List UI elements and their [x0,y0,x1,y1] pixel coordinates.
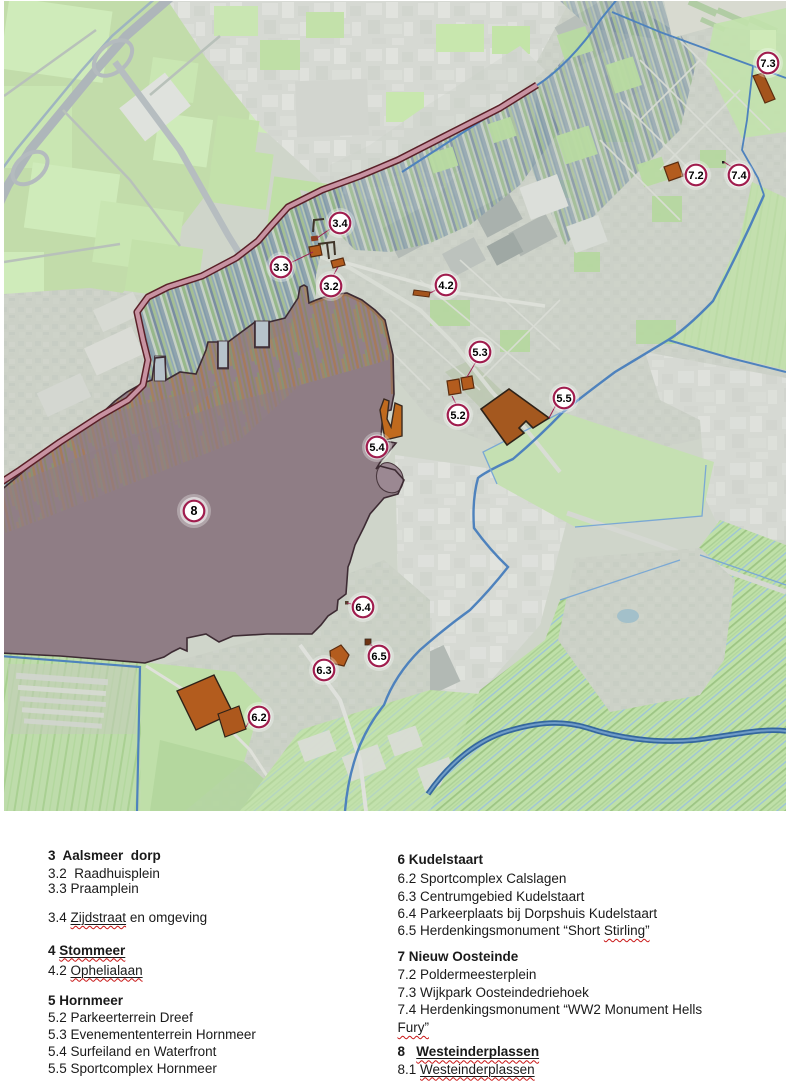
svg-text:3.3: 3.3 [273,262,288,274]
svg-text:8: 8 [191,504,198,518]
svg-text:5.4: 5.4 [369,442,385,454]
svg-text:6.4: 6.4 [355,602,371,614]
svg-text:5.2: 5.2 [450,410,465,422]
svg-text:7.4: 7.4 [731,170,747,182]
svg-text:7.2: 7.2 [688,170,703,182]
svg-text:5.3: 5.3 [472,347,487,359]
svg-text:5.5: 5.5 [556,393,571,405]
svg-text:3.4: 3.4 [332,218,348,230]
svg-text:4.2: 4.2 [438,280,453,292]
svg-text:6.3: 6.3 [316,665,331,677]
svg-text:7.3: 7.3 [760,58,775,70]
svg-text:3.2: 3.2 [323,281,338,293]
svg-text:6.2: 6.2 [251,712,266,724]
svg-text:6.5: 6.5 [371,651,386,663]
